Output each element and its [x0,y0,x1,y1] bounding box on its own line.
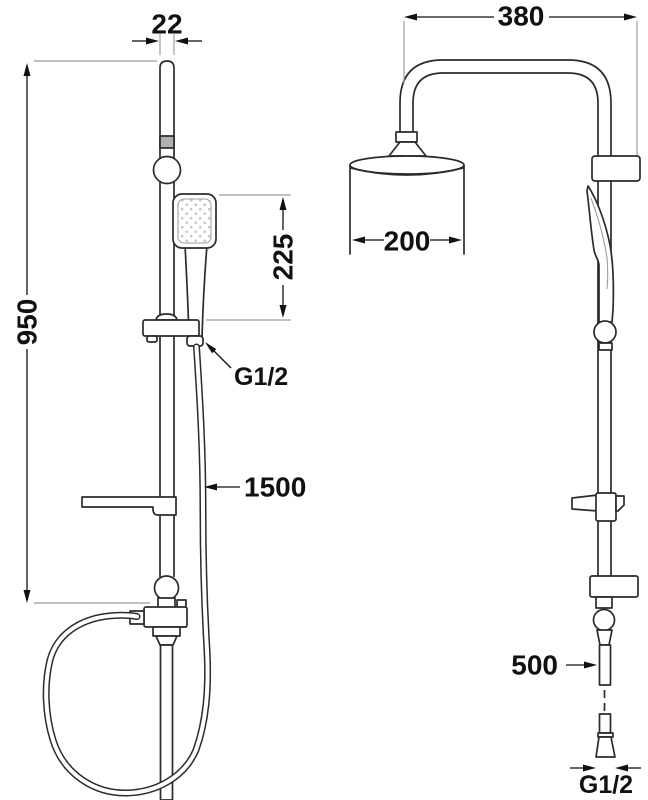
dim-rail-width: 22 [132,9,202,56]
dim-arm-projection: 380 [404,1,637,157]
dim-handshower-length: 225 [206,195,299,320]
dim-handshower-length-label: 225 [268,234,299,281]
dim-connector-length-label: 500 [511,650,558,681]
rail-knob [154,157,181,184]
dim-arm-projection-label: 380 [498,1,545,32]
label-handshower-thread-text: G1/2 [234,363,288,391]
soap-dish-shelf-side [590,576,638,597]
hand-shower-face [178,199,211,243]
connector-pipe [600,645,611,685]
label-handshower-thread: G1/2 [205,342,288,391]
inlet-assembly [594,597,616,757]
dim-connector-length: 500 [511,650,597,681]
shower-hose [46,347,207,793]
arm-nut [396,132,417,142]
technical-drawing-page: 22 950 225 G1/2 [0,0,648,800]
dim-hose-length-label: 1500 [244,472,306,503]
handshower-nut [594,321,616,343]
dim-inlet-thread-label: G1/2 [579,771,633,799]
hand-shower [173,194,216,338]
inlet-cone [596,737,615,757]
dim-head-diameter: 200 [352,226,462,257]
rail-band [160,136,174,148]
dim-rail-width-label: 22 [151,9,182,40]
dim-inlet-thread: G1/2 [570,765,641,800]
shower-set-drawing: 22 950 225 G1/2 [0,0,648,800]
front-view: 22 950 225 G1/2 [12,9,307,800]
rail-slider-side [572,493,624,521]
dim-head-diameter-label: 200 [384,226,431,257]
dim-hose-length: 1500 [204,472,306,503]
diverter-ball [594,610,615,631]
head-cone [389,142,426,156]
dim-column-height-label: 950 [12,299,43,346]
diverter-valve [130,576,187,800]
side-view: 200 380 [350,1,641,800]
valve-knob [155,576,179,600]
soap-dish-shelf [82,497,176,515]
dim-column-height: 950 [12,61,158,603]
wall-bracket [592,156,640,181]
